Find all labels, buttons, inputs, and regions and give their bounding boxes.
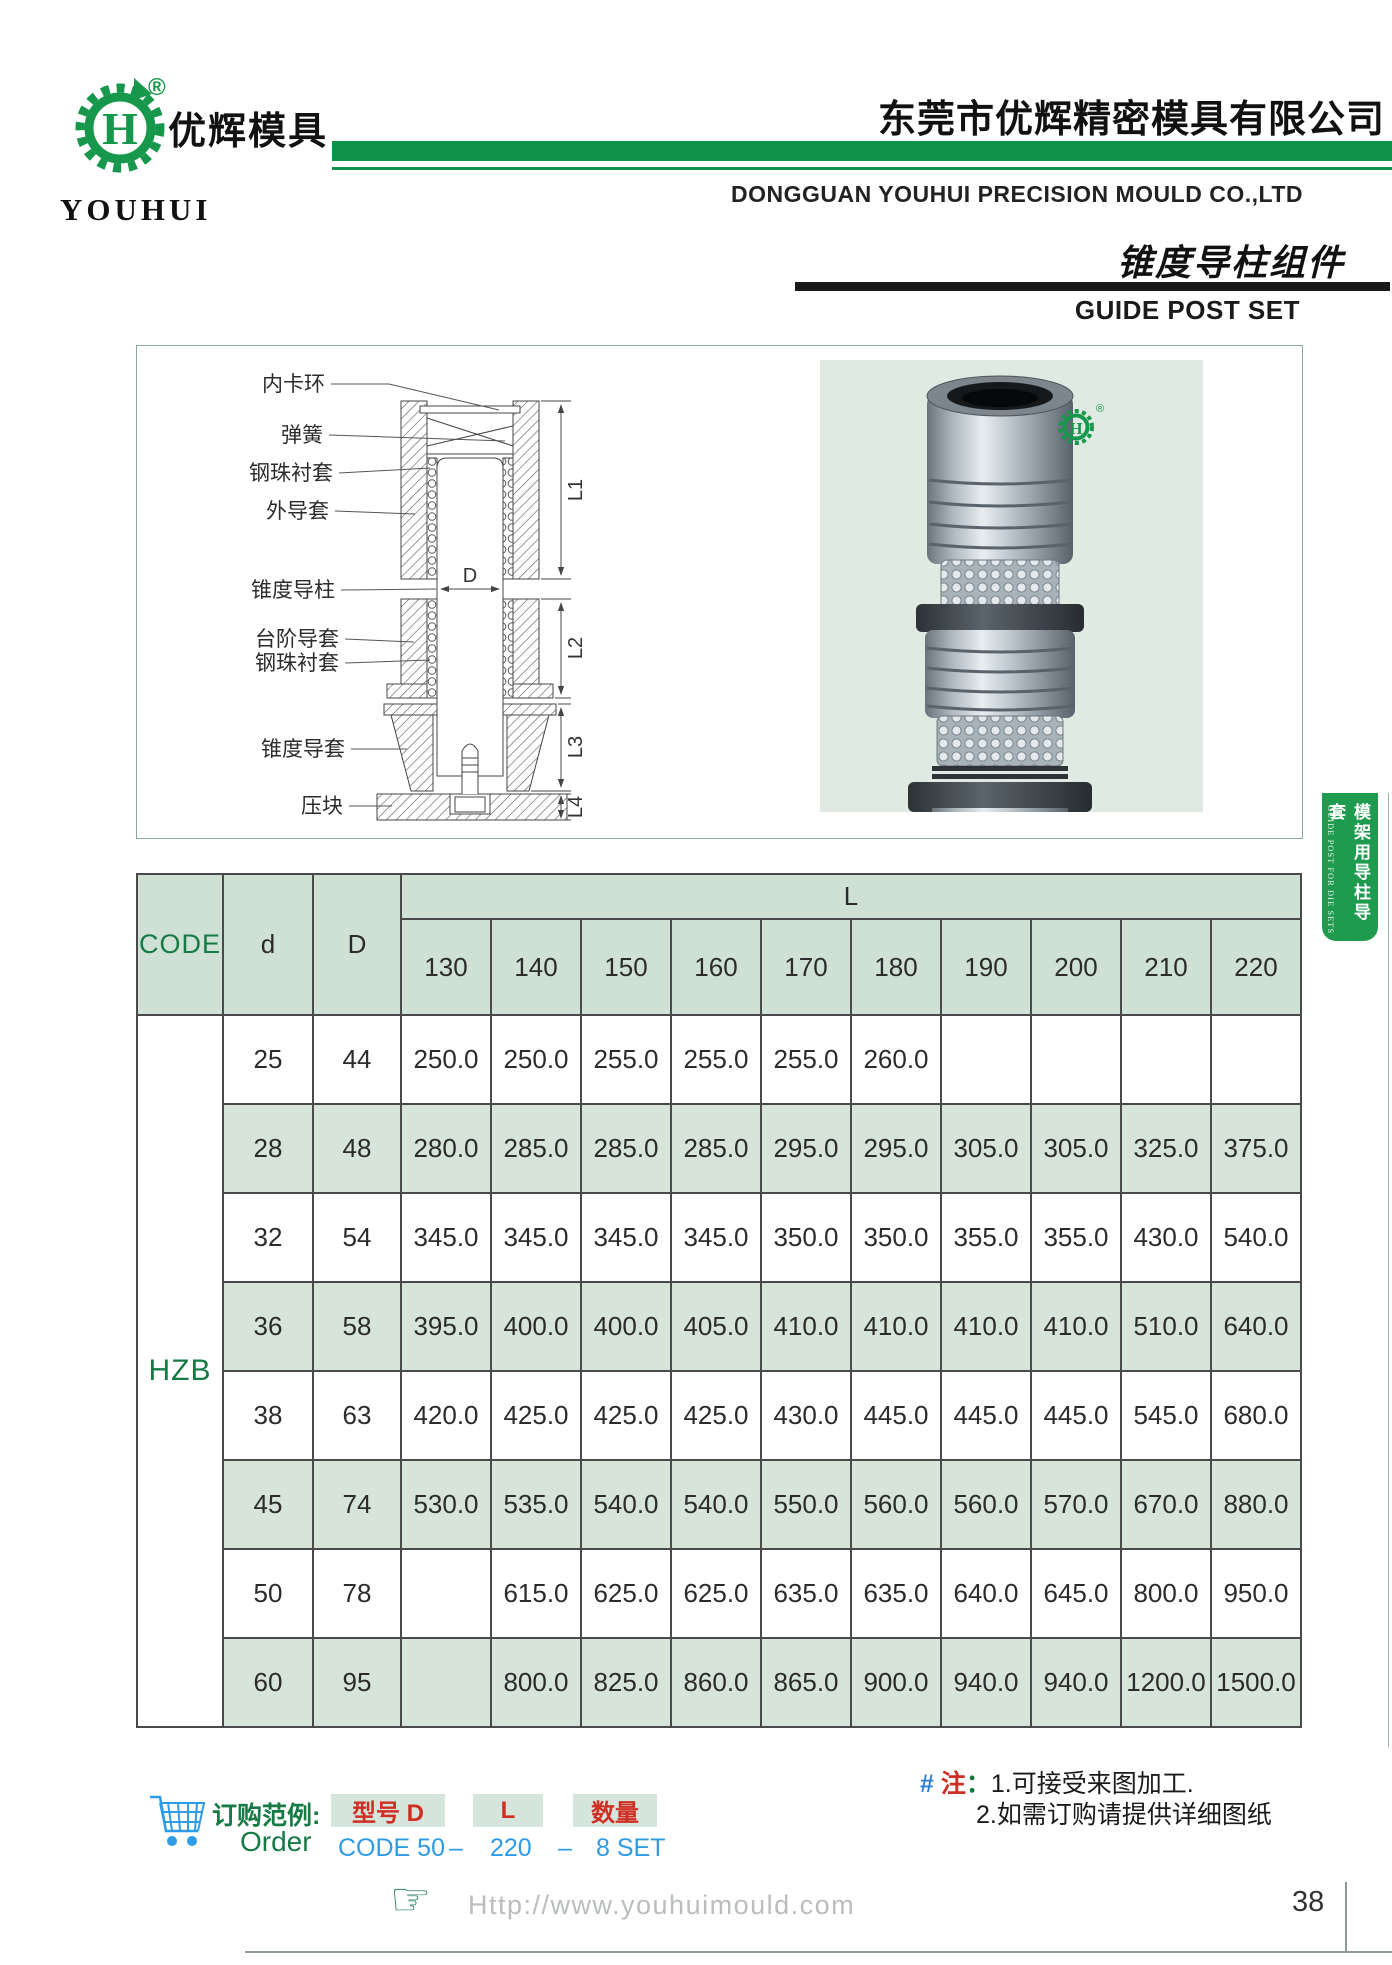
cell-l-190: 560.0 [941,1460,1031,1549]
cell-l-150: 255.0 [581,1015,671,1104]
cell-l-190 [941,1015,1031,1104]
spec-table: CODEdDL130140150160170180190200210220HZB… [136,873,1302,1728]
cell-l-150: 540.0 [581,1460,671,1549]
dim-l2: L2 [565,637,587,659]
cell-D: 74 [313,1460,401,1549]
order-box-length: L [473,1794,543,1827]
cell-l-150: 625.0 [581,1549,671,1638]
cell-l-160: 405.0 [671,1282,761,1371]
cell-l-160: 425.0 [671,1371,761,1460]
cell-d: 38 [223,1371,313,1460]
cell-l-200: 940.0 [1031,1638,1121,1727]
footer-horizontal-rule [245,1951,1392,1953]
svg-text:H: H [1069,419,1082,438]
cell-l-130 [401,1549,491,1638]
cart-icon [146,1791,210,1851]
cell-l-170: 255.0 [761,1015,851,1104]
cell-l-180: 260.0 [851,1015,941,1104]
col-header-code: CODE [137,874,223,1015]
cell-l-220: 1500.0 [1211,1638,1301,1727]
cell-l-210: 430.0 [1121,1193,1211,1282]
cell-l-180: 560.0 [851,1460,941,1549]
order-box-model: 型号 D [331,1794,445,1827]
photo-registered-mark: ® [1096,403,1104,415]
pointing-hand-icon: ☞ [390,1872,431,1926]
green-bar-thick [332,141,1392,161]
table-row: 4574530.0535.0540.0540.0550.0560.0560.05… [137,1460,1301,1549]
note-block: # 注：1.可接受来图加工. 2.如需订购请提供详细图纸 [920,1769,1272,1831]
company-name-cn: 东莞市优辉精密模具有限公司 [878,88,1385,143]
cell-l-160: 345.0 [671,1193,761,1282]
order-example-dash1: – [449,1834,463,1863]
cell-l-200: 570.0 [1031,1460,1121,1549]
col-header-l-150: 150 [581,919,671,1015]
order-box-qty: 数量 [573,1794,657,1827]
side-tab-label-en: GUIDE POST FOR DIE SETS [1326,805,1336,934]
dim-l1: L1 [565,479,587,501]
cell-l-220 [1211,1015,1301,1104]
note-text-2: 2.如需订购请提供详细图纸 [976,1801,1272,1829]
cell-l-200: 410.0 [1031,1282,1121,1371]
cell-l-160: 285.0 [671,1104,761,1193]
cell-l-180: 410.0 [851,1282,941,1371]
label-press-block: 压块 [301,795,343,818]
table-row: 6095800.0825.0860.0865.0900.0940.0940.01… [137,1638,1301,1727]
cell-d: 45 [223,1460,313,1549]
cell-l-200: 305.0 [1031,1104,1121,1193]
cell-d: 36 [223,1282,313,1371]
cell-l-160: 540.0 [671,1460,761,1549]
cell-l-220: 375.0 [1211,1104,1301,1193]
table-row: 3254345.0345.0345.0345.0350.0350.0355.03… [137,1193,1301,1282]
cell-l-160: 255.0 [671,1015,761,1104]
cell-l-200: 355.0 [1031,1193,1121,1282]
table-row: 3658395.0400.0400.0405.0410.0410.0410.04… [137,1282,1301,1371]
col-header-l-180: 180 [851,919,941,1015]
table-row: HZB2544250.0250.0255.0255.0255.0260.0 [137,1015,1301,1104]
cell-l-150: 425.0 [581,1371,671,1460]
col-header-l-140: 140 [491,919,581,1015]
cell-D: 48 [313,1104,401,1193]
catalog-page: H ® 优辉模具 YOUHUI 东莞市优辉精密模具有限公司 DONGGUAN Y… [0,0,1392,1965]
code-cell: HZB [137,1015,223,1727]
label-taper-pillar: 锥度导柱 [251,579,335,602]
table-row: 2848280.0285.0285.0285.0295.0295.0305.03… [137,1104,1301,1193]
spec-table-container: CODEdDL130140150160170180190200210220HZB… [136,873,1302,1728]
note-line-1: # 注：1.可接受来图加工. [920,1769,1272,1800]
cell-l-180: 635.0 [851,1549,941,1638]
cell-l-150: 285.0 [581,1104,671,1193]
cell-l-160: 625.0 [671,1549,761,1638]
order-example-qty: 8 SET [596,1834,665,1863]
col-header-l-200: 200 [1031,919,1121,1015]
note-text-1: 1.可接受来图加工. [991,1770,1194,1798]
cell-l-140: 615.0 [491,1549,581,1638]
cell-l-220: 540.0 [1211,1193,1301,1282]
cell-l-160: 860.0 [671,1638,761,1727]
col-header-l-220: 220 [1211,919,1301,1015]
cell-l-140: 800.0 [491,1638,581,1727]
cell-d: 32 [223,1193,313,1282]
side-tab: 模架用导柱导套 GUIDE POST FOR DIE SETS [1322,793,1378,941]
cell-l-140: 345.0 [491,1193,581,1282]
cell-l-170: 410.0 [761,1282,851,1371]
green-bar-thin [332,167,1392,170]
col-header-l-160: 160 [671,919,761,1015]
cell-l-220: 880.0 [1211,1460,1301,1549]
dim-l3: L3 [565,736,587,758]
cell-l-220: 950.0 [1211,1549,1301,1638]
cell-l-130: 530.0 [401,1460,491,1549]
note-line-2: 2.如需订购请提供详细图纸 [976,1800,1272,1831]
cell-l-140: 250.0 [491,1015,581,1104]
cell-d: 28 [223,1104,313,1193]
cell-l-210: 325.0 [1121,1104,1211,1193]
cell-l-150: 825.0 [581,1638,671,1727]
cell-l-190: 305.0 [941,1104,1031,1193]
order-example-dash2: – [558,1834,572,1863]
logo-letter: H [102,103,138,154]
label-taper-bush: 锥度导套 [261,738,345,761]
cell-D: 63 [313,1371,401,1460]
cell-l-130: 250.0 [401,1015,491,1104]
product-photo: H ® [820,360,1203,812]
cell-l-130: 395.0 [401,1282,491,1371]
table-row: 3863420.0425.0425.0425.0430.0445.0445.04… [137,1371,1301,1460]
registered-mark: ® [148,74,166,102]
cell-l-210: 1200.0 [1121,1638,1211,1727]
cell-l-180: 350.0 [851,1193,941,1282]
cell-l-180: 445.0 [851,1371,941,1460]
cell-D: 54 [313,1193,401,1282]
order-example-length: 220 [490,1834,532,1863]
note-mark: 注 [941,1770,966,1798]
label-step-bush: 台阶导套 [255,628,339,651]
cell-D: 78 [313,1549,401,1638]
page-number: 38 [1292,1886,1324,1919]
cell-l-210 [1121,1015,1211,1104]
cell-D: 95 [313,1638,401,1727]
cell-l-130: 280.0 [401,1104,491,1193]
note-hash: # [920,1770,934,1798]
cell-l-150: 345.0 [581,1193,671,1282]
cell-l-170: 550.0 [761,1460,851,1549]
page-edge-line [1388,793,1389,1747]
title-rule [795,282,1390,291]
col-header-l: L [401,874,1301,919]
product-title-en: GUIDE POST SET [1075,295,1300,326]
dim-d: D [463,565,477,587]
cell-d: 50 [223,1549,313,1638]
cell-l-140: 535.0 [491,1460,581,1549]
cell-l-170: 635.0 [761,1549,851,1638]
order-title-en: Order [240,1826,312,1858]
col-header-D: D [313,874,401,1015]
cell-l-170: 295.0 [761,1104,851,1193]
col-header-l-130: 130 [401,919,491,1015]
cell-d: 25 [223,1015,313,1104]
cell-l-220: 680.0 [1211,1371,1301,1460]
label-spring: 弹簧 [281,424,323,447]
order-example-code: CODE 50 [338,1834,445,1863]
cell-l-190: 940.0 [941,1638,1031,1727]
logo-text-cn: 优辉模具 [168,100,328,155]
col-header-l-190: 190 [941,919,1031,1015]
product-title-cn: 锥度导柱组件 [1117,234,1345,286]
label-ball-cage-1: 钢珠衬套 [249,462,333,485]
cell-l-130: 345.0 [401,1193,491,1282]
cell-l-210: 800.0 [1121,1549,1211,1638]
logo-text-en: YOUHUI [60,192,211,228]
footer-vertical-rule [1345,1882,1347,1953]
cell-l-180: 295.0 [851,1104,941,1193]
cell-l-140: 285.0 [491,1104,581,1193]
cell-l-190: 355.0 [941,1193,1031,1282]
cell-l-220: 640.0 [1211,1282,1301,1371]
cell-l-210: 510.0 [1121,1282,1211,1371]
cell-l-190: 410.0 [941,1282,1031,1371]
cell-d: 60 [223,1638,313,1727]
cell-l-190: 640.0 [941,1549,1031,1638]
cell-l-190: 445.0 [941,1371,1031,1460]
cell-l-200 [1031,1015,1121,1104]
cell-l-210: 545.0 [1121,1371,1211,1460]
label-inner-clip: 内卡环 [262,373,325,396]
cell-l-130: 420.0 [401,1371,491,1460]
guide-pillar-outline [437,458,503,776]
cell-l-140: 400.0 [491,1282,581,1371]
cell-l-170: 865.0 [761,1638,851,1727]
table-row: 5078615.0625.0625.0635.0635.0640.0645.08… [137,1549,1301,1638]
col-header-l-170: 170 [761,919,851,1015]
company-name-en: DONGGUAN YOUHUI PRECISION MOULD CO.,LTD [731,181,1303,208]
cell-D: 58 [313,1282,401,1371]
cell-l-170: 350.0 [761,1193,851,1282]
col-header-d: d [223,874,313,1015]
cell-l-130 [401,1638,491,1727]
col-header-l-210: 210 [1121,919,1211,1015]
note-colon: ： [966,1770,991,1798]
cell-l-180: 900.0 [851,1638,941,1727]
guide-post-render: H ® [820,360,1203,812]
website-url[interactable]: Http://www.youhuimould.com [468,1890,855,1921]
cell-l-200: 445.0 [1031,1371,1121,1460]
cell-l-210: 670.0 [1121,1460,1211,1549]
cell-l-200: 645.0 [1031,1549,1121,1638]
dim-l4: L4 [565,796,587,818]
cell-D: 44 [313,1015,401,1104]
cell-l-170: 430.0 [761,1371,851,1460]
cell-l-140: 425.0 [491,1371,581,1460]
label-outer-bush: 外导套 [266,500,329,523]
cell-l-150: 400.0 [581,1282,671,1371]
label-ball-cage-2: 钢珠衬套 [255,652,339,675]
